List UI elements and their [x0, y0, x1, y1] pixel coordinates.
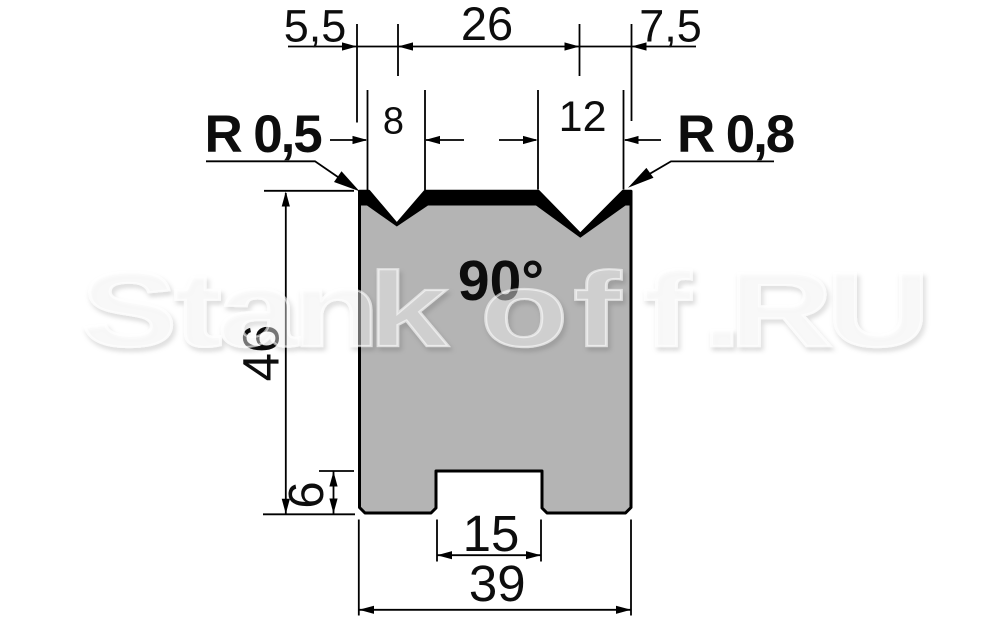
svg-text:5,5: 5,5	[284, 1, 347, 52]
svg-text:39: 39	[469, 555, 526, 612]
svg-text:Stankoff.RU: Stankoff.RU	[81, 250, 930, 369]
svg-text:R 0,8: R 0,8	[677, 105, 794, 164]
svg-text:R 0,5: R 0,5	[205, 105, 322, 164]
svg-text:12: 12	[559, 93, 607, 141]
svg-text:15: 15	[463, 505, 520, 562]
svg-text:8: 8	[383, 101, 404, 143]
svg-text:6: 6	[280, 481, 334, 508]
svg-text:26: 26	[461, 0, 513, 50]
svg-text:7,5: 7,5	[639, 1, 702, 52]
